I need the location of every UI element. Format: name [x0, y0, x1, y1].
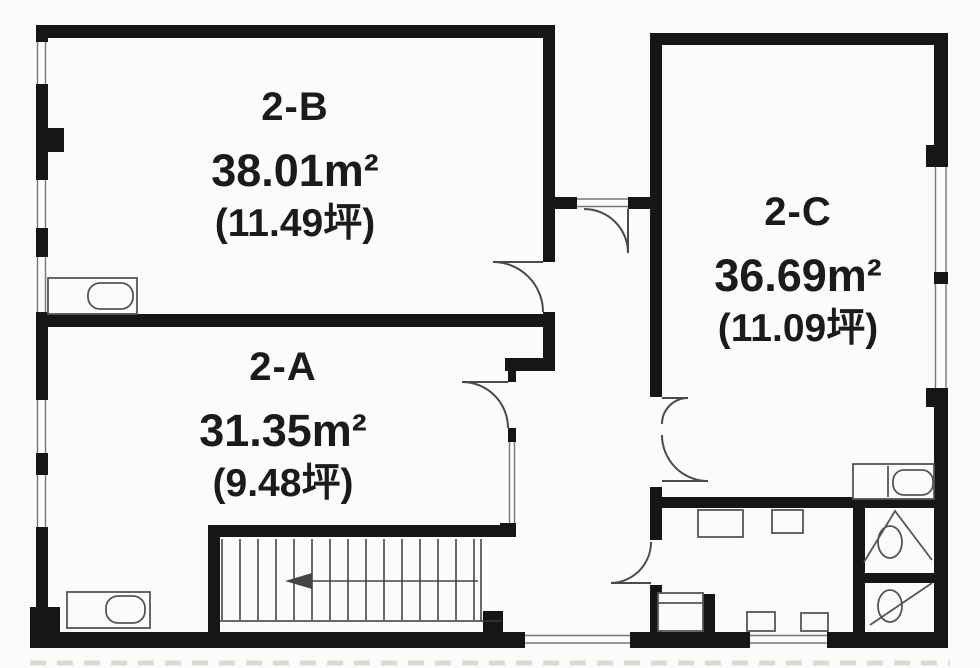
wall-left-seg — [36, 527, 48, 614]
wall-left-seg — [36, 25, 48, 42]
room-name: 2-B — [145, 84, 445, 130]
room-area-tsubo: (9.48坪) — [133, 461, 433, 507]
wall-top-left-wing — [36, 25, 555, 38]
room-name: 2-A — [133, 344, 433, 390]
glass-partition-hall — [510, 442, 515, 523]
room-area-tsubo: (11.49坪) — [145, 201, 445, 247]
wall-hall-top — [543, 197, 577, 209]
room-label-2c: 2-C 36.69m² (11.09坪) — [648, 189, 948, 352]
wall-pillar-right — [926, 388, 948, 407]
room-name: 2-C — [648, 189, 948, 235]
door-room-2a — [462, 382, 508, 428]
wall-2b-2a-divider — [36, 314, 555, 327]
door-room-2b — [493, 262, 543, 312]
wall-bottom-seg — [827, 632, 948, 648]
door-room-2c-main-leaf — [662, 435, 708, 481]
sink-2c-basin — [893, 470, 933, 495]
wall-left-2c — [650, 487, 662, 540]
wall-pillar-left — [48, 128, 64, 152]
room-area-m2: 38.01m² — [145, 146, 445, 196]
staircase — [220, 539, 502, 621]
utility-unit — [801, 613, 828, 631]
wall-right-2c — [934, 33, 948, 145]
wall-partition-seg — [508, 428, 516, 442]
kitchen-cabinet — [772, 510, 803, 533]
wall-partition-seg — [508, 371, 516, 382]
room-label-2b: 2-B 38.01m² (11.49坪) — [145, 84, 445, 247]
wall-bottom-seg — [630, 632, 750, 648]
toilet-upper — [878, 526, 902, 558]
door-utility-room — [611, 542, 651, 583]
room-area-tsubo: (11.09坪) — [648, 306, 948, 352]
wall-left-seg — [36, 228, 48, 257]
wall-bottom-seg — [30, 632, 525, 648]
room-label-2a: 2-A 31.35m² (9.48坪) — [133, 344, 433, 507]
kitchen-counter — [658, 593, 703, 631]
wall-stair-top — [208, 525, 513, 537]
stair-treads — [222, 539, 474, 620]
wall-left-seg — [36, 84, 48, 180]
wall-utility-stub — [702, 594, 715, 632]
stair-direction-arrow — [285, 573, 312, 589]
sink-2a-basin — [106, 596, 145, 623]
wall-toilet-divider — [853, 573, 938, 583]
stair-edge-lines — [220, 539, 502, 621]
door-hall-top — [584, 209, 628, 253]
kitchen-cabinet — [698, 510, 743, 537]
room-area-m2: 36.69m² — [648, 251, 948, 301]
wall-pillar-right — [926, 145, 948, 167]
threshold-hall-top-door — [577, 199, 628, 207]
floor-plan: 2-B 38.01m² (11.49坪) 2-A 31.35m² (9.48坪)… — [0, 0, 980, 668]
utility-unit — [747, 612, 775, 631]
wall-left-seg — [36, 453, 48, 475]
wall-right-2c — [934, 407, 948, 648]
wall-hall-jog — [505, 358, 555, 371]
wall-right-of-left-wing — [543, 25, 555, 262]
wall-top-2c — [650, 33, 948, 45]
room-area-m2: 31.35m² — [133, 406, 433, 456]
door-room-2c-child-leaf — [662, 398, 688, 424]
sink-2b-basin — [88, 283, 133, 309]
wall-stair-left — [208, 537, 220, 632]
